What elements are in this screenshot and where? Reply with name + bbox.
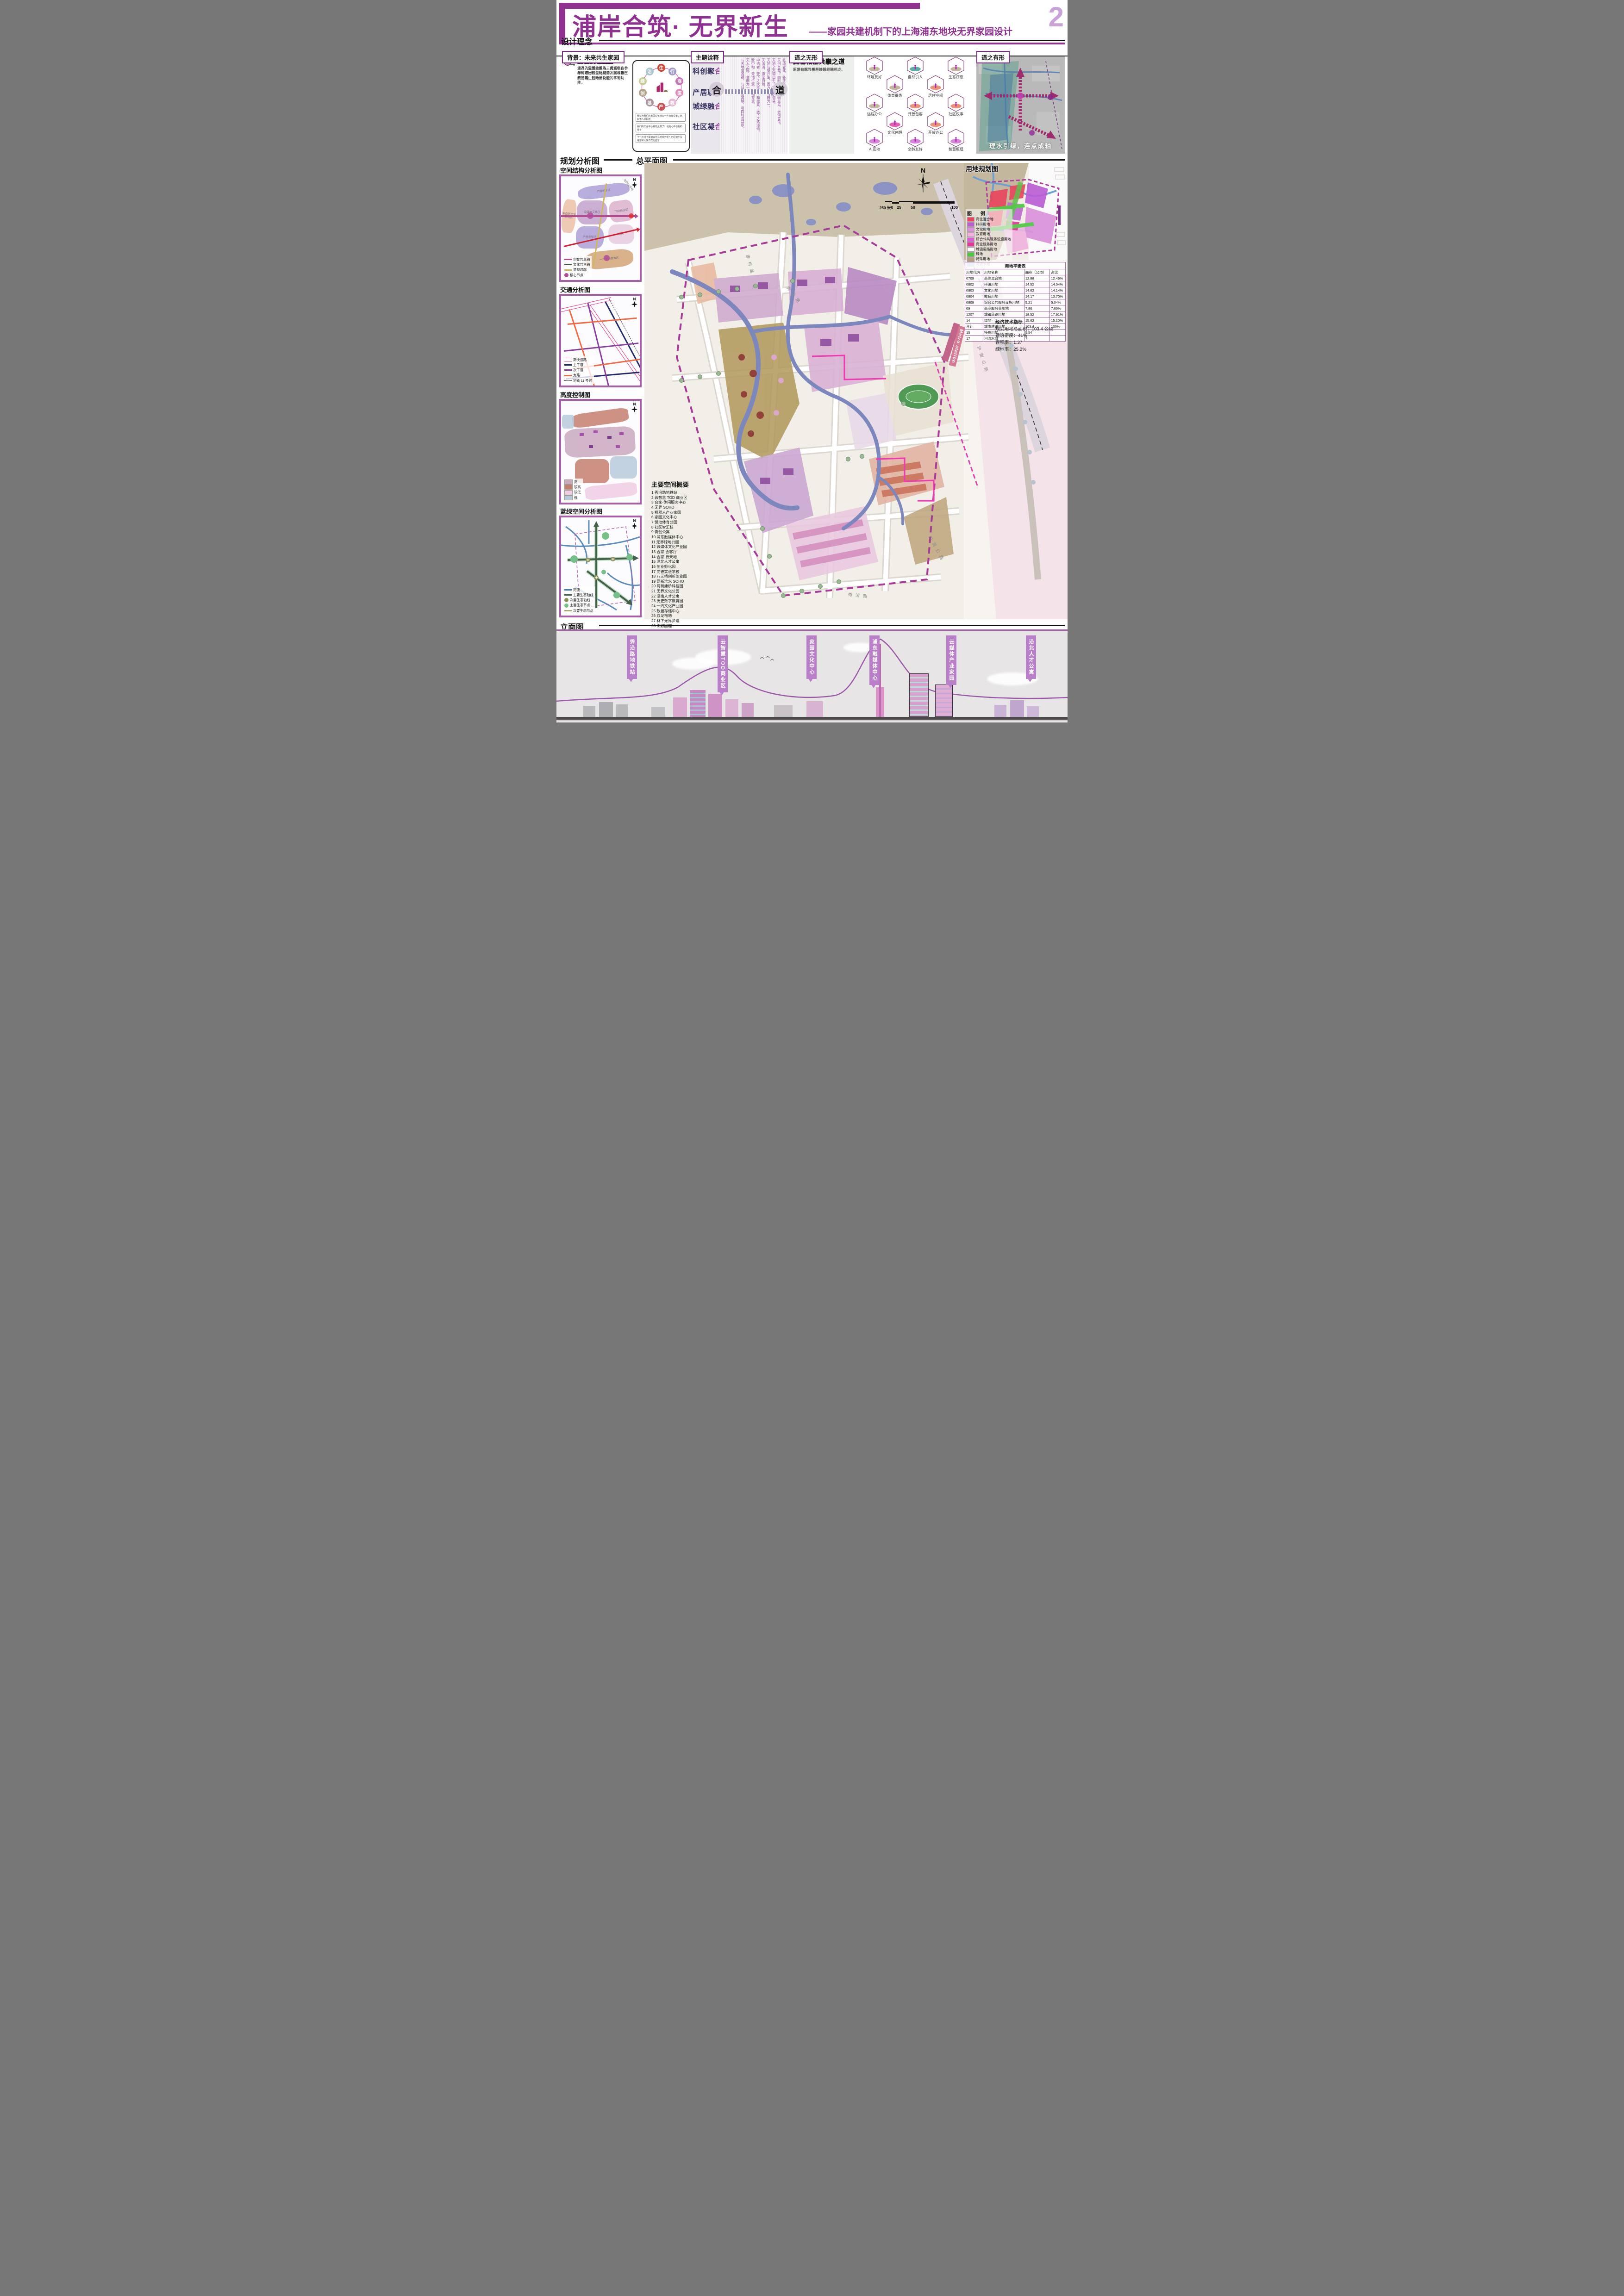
- elevation-label: 家园文化中心: [806, 635, 817, 679]
- function-dot: 产: [657, 103, 665, 111]
- height-zone-high: [564, 426, 636, 458]
- verse: 天何言哉？四时行焉，百物生焉，天何言哉。: [777, 58, 781, 152]
- space-summary-item: 11 无界绿地公园: [651, 540, 725, 545]
- function-dot: 教: [668, 99, 676, 106]
- table-row: 0803 文化用地 14.62 14.14%: [965, 287, 1066, 293]
- space-summary-item: 18 八元桥创新创业园: [651, 574, 725, 579]
- legend-swatch: [564, 269, 572, 271]
- compass-icon: N: [631, 403, 637, 415]
- function-dot: 治: [646, 68, 654, 75]
- poster-page: 浦岸合筑· 无界新生 ——家园共建机制下的上海浦东地块无界家园设计 2 设计理念…: [556, 0, 1068, 722]
- hexagon-icon: [907, 56, 924, 75]
- space-summary: 主要空间概要 1 秀沿路地铁站2 云智慧 TOD 商业区3 合家·休闲服务中心4…: [651, 479, 725, 628]
- core-node: [604, 255, 610, 261]
- legend-swatch: [564, 375, 572, 376]
- spatial-structure-map: 产居创智区 云媒体文化区 TOD商业区 校区 产居创智区: [559, 174, 642, 282]
- elevation-building: [994, 705, 1006, 717]
- hexagon-icon: [866, 129, 883, 147]
- function-dot: 绿: [639, 77, 647, 85]
- legend-row: 高快速路: [564, 357, 592, 362]
- elevation-label: 秀沿路地铁站: [627, 635, 637, 679]
- elevation-building: [725, 699, 738, 717]
- theme-keyword: 科创聚合: [693, 66, 718, 76]
- hexagon-icon: [887, 112, 903, 131]
- legend-row: 河流: [564, 587, 593, 592]
- table-row: 09 商业服务业用地 7.86 7.60%: [965, 305, 1066, 311]
- hex-label: 智慧枢纽: [937, 147, 974, 152]
- compass-icon: N: [631, 298, 637, 310]
- legend-swatch: [564, 589, 572, 591]
- legend-chip: [967, 247, 974, 252]
- hexagon-icon: [887, 75, 903, 93]
- legend-row: 主要生态节点: [564, 603, 593, 608]
- building-icon: [655, 81, 668, 97]
- page-title: 浦岸合筑· 无界新生: [572, 7, 789, 42]
- elevation-building: [774, 705, 793, 717]
- landuse-legend-title: 图 例: [967, 210, 1011, 217]
- space-summary-item: 2 云智慧 TOD 商业区: [651, 496, 725, 501]
- legend-row: 主要生态轴线: [564, 592, 593, 597]
- table-row: 0809 综合公共服务设施用地 5.21 5.04%: [965, 299, 1066, 305]
- hexagon-icon: [948, 56, 964, 75]
- legend-swatch: [564, 264, 572, 265]
- elevation-building: [583, 706, 595, 717]
- hexagon-icon: [927, 75, 944, 93]
- legend-chip: [967, 232, 974, 237]
- verse: 天地与我并生，而万物与我为一。: [766, 58, 770, 152]
- blue-green-map: N 河流 主要生态轴线 次要生态轴线: [559, 516, 642, 617]
- legend-swatch: [564, 358, 572, 361]
- space-summary-item: 16 创业孵化园: [651, 565, 725, 570]
- space-summary-item: 8 社区智汇核: [651, 525, 725, 530]
- table-row: 1207 城镇道路用地 18.52 17.91%: [965, 311, 1066, 317]
- legend-swatch: [564, 369, 572, 371]
- elevation-building: [690, 690, 706, 717]
- chat-bubbles: 我认为我们的家园应该增加一些智能设备，比如无人机配送 我们的文化中心做的太赞了！…: [636, 113, 686, 145]
- hexagon-icon: [948, 93, 964, 112]
- table-title: 用地平衡表: [965, 262, 1066, 269]
- economic-indicators: 经济技术指标 规划用地总面积：103.4 公顷建筑密度：41%容积率：1.37绿…: [995, 319, 1066, 353]
- space-summary-item: 5 机器人产业家园: [651, 510, 725, 516]
- elevation-strip: 秀沿路地铁站云智慧TOD商业区家园文化中心浦东融媒体中心云媒体产业家园沿北人才公…: [556, 629, 1068, 722]
- table-header-row: 用地代码 用地名称 面积（公顷） 占比: [965, 269, 1066, 275]
- elevation-label: 云智慧TOD商业区: [718, 635, 728, 692]
- chat-bubble: 我们的文化中心做的太赞了！是我心中该有的样子: [636, 124, 686, 132]
- scale-tick: 250 米: [879, 205, 891, 211]
- legend-swatch: [564, 598, 568, 602]
- function-ring: 住 行 商 医 教 产 基 创 绿 治: [638, 64, 684, 110]
- elevation-building: [1010, 700, 1024, 717]
- subground-line: [556, 720, 1068, 722]
- elevation-building: [673, 697, 687, 717]
- space-summary-item: 6 家园文化中心: [651, 515, 725, 520]
- dao-intangible-panel: 人地和谐共生之道 人与自然界相互渗透。 产居一体共享之道 生活社区与生产社区相融…: [789, 56, 854, 154]
- legend-row: 地铁 11 号线: [564, 378, 592, 383]
- legend-swatch: [564, 610, 572, 611]
- verse: 天地之大德曰生，生生之谓易。: [771, 58, 775, 152]
- north-arrow: N: [915, 167, 931, 195]
- spatial-zone: TOD商业区: [608, 199, 635, 224]
- landuse-title: 用地规划图: [966, 164, 998, 174]
- legend-swatch: [564, 364, 572, 366]
- legend-row: 绿地: [967, 252, 1011, 257]
- hexagon-icon: [866, 93, 883, 112]
- concept-panel: AI 技术统盘 通过人工智能系统，对城市各个系统进行智慧化整合，实现城市的感知、…: [562, 56, 689, 154]
- scale-tick: 0: [891, 205, 893, 210]
- space-summary-item: 20 网新康桥科技园: [651, 584, 725, 589]
- legend-row: 较低: [564, 490, 581, 495]
- elevation-building: [616, 704, 628, 717]
- traffic-map-title: 交通分析图: [560, 285, 590, 294]
- elevation-label: 云媒体产业家园: [946, 635, 956, 685]
- tag-theme: 主题诠释: [691, 51, 724, 63]
- height-control-map: N 高 较高 较低: [559, 399, 642, 504]
- scale-bar: 02550100250 米: [885, 200, 955, 210]
- function-dot: 医: [675, 89, 683, 97]
- compass-icon: N: [631, 519, 637, 531]
- legend-swatch: [564, 380, 572, 381]
- legend-swatch: [564, 259, 572, 260]
- tag-dao-intangible: 道之无形: [789, 51, 823, 63]
- legend-swatch: [564, 604, 568, 608]
- theme-panel: 科创聚合 产居联合 城绿融合 社区凝合 乾道变化，各正其道。天何言哉？四时行焉，…: [691, 56, 788, 154]
- legend-row: 较高: [564, 485, 581, 490]
- height-zone-higher: [572, 407, 630, 429]
- landuse-legend: 图 例 商住混合地 科研用地 文化用地: [966, 209, 1012, 268]
- analysis-rule: [604, 159, 632, 161]
- space-summary-item: 13 合家·会客厅: [651, 550, 725, 555]
- legend-chip: [967, 227, 974, 232]
- aerial-caption: 理水引绿，连点成轴: [976, 141, 1065, 150]
- legend-row: 教育用地: [967, 232, 1011, 237]
- elevation-building: [651, 707, 665, 717]
- space-summary-item: 28 田野园趣: [651, 624, 725, 629]
- space-summary-item: 24 一汽文化产业园: [651, 604, 725, 609]
- legend-chip: [967, 257, 974, 262]
- legend-chip: [967, 252, 974, 257]
- secondary-line: [564, 342, 638, 351]
- legend-row: 低: [564, 495, 581, 500]
- function-dot: 住: [657, 64, 665, 72]
- legend-row: 创智共享轴: [564, 257, 590, 262]
- height-zone-low: [610, 456, 637, 479]
- hex-grid: 环境友好 自然引入 生态疗愈: [855, 56, 974, 154]
- legend-chip: [967, 237, 974, 242]
- verse: 致中和，天地位焉，万物育焉。: [750, 58, 755, 152]
- legend-row: 商业服务用地: [967, 242, 1011, 247]
- theme-keyword: 社区凝合: [693, 121, 718, 131]
- hexagon-icon: [927, 112, 944, 131]
- spatial-legend: 创智共享轴 文化共生轴 景观通廊 核心节点: [562, 256, 592, 279]
- section-title-analysis: 规划分析图: [560, 155, 600, 166]
- function-dot: 基: [646, 99, 654, 106]
- theme-keywords: 科创聚合 产居联合 城绿融合 社区凝合: [691, 56, 719, 154]
- elevation-building: [742, 703, 754, 717]
- hexagon-icon: [866, 56, 883, 75]
- indicator-line: 绿地率：25.2%: [995, 347, 1066, 354]
- elevation-label: 沿北人才公寓: [1026, 635, 1036, 679]
- legend-swatch: [564, 490, 573, 495]
- hexagon-icon: [907, 129, 924, 147]
- legend-row: 支路: [564, 373, 592, 378]
- legend-row: 主干道: [564, 362, 592, 367]
- elevation-building: [708, 694, 722, 717]
- dao-item-desc: 历史文脉与新兴科技相辅相成。: [793, 67, 851, 72]
- table-row: 0804 教育用地 14.17 13.70%: [965, 293, 1066, 299]
- chat-bubble: 我认为我们的家园应该增加一些智能设备，比如无人机配送: [636, 113, 686, 122]
- elevation-building: [935, 684, 953, 717]
- legend-row: 文化共生轴: [564, 262, 590, 267]
- tablet-illustration: 住 行 商 医 教 产 基 创 绿 治: [632, 60, 690, 152]
- verse: 天法道，道法自然。: [761, 58, 765, 152]
- verse: 与天地合其德，与日月合其明，与四时合其序。: [740, 58, 744, 152]
- scale-tick: 50: [911, 205, 915, 210]
- legend-swatch: [564, 495, 573, 500]
- he-dao-arrow: [725, 89, 771, 94]
- aerial-map: [976, 56, 1065, 154]
- classical-verses: 乾道变化，各正其道。天何言哉？四时行焉，百物生焉，天何言哉。天地之大德曰生，生生…: [719, 56, 788, 154]
- traffic-map: N 高快速路 主干道 次干道: [559, 294, 642, 387]
- legend-row: 核心节点: [564, 273, 590, 278]
- elevation-building: [599, 702, 613, 717]
- height-zone-lower: [585, 481, 638, 501]
- legend-swatch: [564, 479, 573, 485]
- space-summary-item: 17 尚德实验学校: [651, 570, 725, 575]
- traffic-legend: 高快速路 主干道 次干道 支路: [562, 356, 594, 384]
- elevation-building: [1027, 706, 1039, 717]
- indicators-title: 经济技术指标: [995, 319, 1066, 326]
- bluegreen-legend: 河流 主要生态轴线 次要生态轴线 主要生态节点: [562, 586, 595, 614]
- elevation-label: 浦东融媒体中心: [869, 635, 880, 685]
- space-summary-item: 3 合家·休闲服务中心: [651, 500, 725, 505]
- space-summary-item: 22 沿南人才公寓: [651, 594, 725, 599]
- indicator-line: 规划用地总面积：103.4 公顷: [995, 326, 1066, 333]
- sheet-number: 2: [1049, 1, 1064, 33]
- indicator-lines: 规划用地总面积：103.4 公顷建筑密度：41%容积率：1.37绿地率：25.2…: [995, 326, 1066, 354]
- legend-row: 次要生态轴线: [564, 597, 593, 603]
- hex-cell: 全龄友好: [897, 129, 934, 152]
- legend-row: 次要生态节点: [564, 608, 593, 613]
- space-summary-item: 21 无界文化公园: [651, 589, 725, 594]
- height-map-title: 高度控制图: [560, 390, 590, 399]
- height-zone-low: [562, 415, 574, 429]
- legend-row: 文化用地: [967, 227, 1011, 232]
- space-summary-item: 9 青创公寓: [651, 530, 725, 535]
- tag-background: 背景：未来共生家园: [562, 51, 625, 63]
- space-summary-item: 27 林下无界步道: [651, 619, 725, 624]
- hexagon-icon: [948, 129, 964, 147]
- height-legend: 高 较高 较低 低: [562, 479, 583, 501]
- masterplan-rule: [673, 159, 1065, 161]
- scale-tick: 25: [897, 205, 901, 210]
- space-summary-item: 26 双龙福地: [651, 614, 725, 619]
- dao-circle: 道: [773, 82, 787, 97]
- verse: 乾道变化，各正其道。: [782, 58, 786, 152]
- chat-bubble: 下一次线下联谊会什么时候开呢？已经迫不及待想和大家再次见面了: [636, 134, 686, 143]
- he-circle: 合: [709, 82, 724, 97]
- space-summary-item: 12 云媒体文化产业园: [651, 545, 725, 550]
- legend-row: 次干道: [564, 367, 592, 373]
- concept-item-desc: 以人的需求为核心，促进公众参与的家园建设机制，发展城市生长的内生性力量。: [577, 66, 631, 81]
- scale-tick: 100: [951, 205, 958, 210]
- space-summary-item: 4 无界 SOHO: [651, 505, 725, 510]
- legend-row: 景观通廊: [564, 267, 590, 272]
- space-summary-item: 15 沿北人才公寓: [651, 560, 725, 565]
- section-title-concept: 设计理念: [561, 35, 593, 47]
- function-dot: 行: [668, 68, 676, 75]
- space-summary-item: 25 数据存储中心: [651, 609, 725, 614]
- legend-row: 商住混合地: [967, 217, 1011, 222]
- page-subtitle: ——家园共建机制下的上海浦东地块无界家园设计: [809, 24, 1012, 37]
- legend-swatch: [564, 273, 568, 277]
- function-dot: 创: [639, 89, 647, 97]
- elevation-building: [909, 673, 929, 717]
- space-summary-item: 10 浦东融媒体中心: [651, 535, 725, 540]
- space-summary-item: 14 合家·云天地: [651, 555, 725, 560]
- concept-rule: [599, 40, 1065, 41]
- legend-row: 综合公共服务设施用地: [967, 237, 1011, 242]
- hex-label: 全龄友好: [897, 147, 934, 152]
- landuse-legend-rows: 商住混合地 科研用地 文化用地 教育用地: [967, 217, 1011, 267]
- legend-swatch: [564, 485, 573, 490]
- hexagon-icon: [907, 93, 924, 112]
- space-summary-list: 1 秀沿路地铁站2 云智慧 TOD 商业区3 合家·休闲服务中心4 无界 SOH…: [651, 491, 725, 628]
- elevation-building: [806, 701, 823, 717]
- table-row: 0802 科研用地 14.52 14.04%: [965, 281, 1066, 287]
- hex-label: AI互动: [856, 147, 893, 152]
- legend-swatch: [564, 594, 572, 596]
- space-summary-title: 主要空间概要: [651, 479, 725, 489]
- hex-cell: AI互动: [856, 129, 893, 152]
- verse: 天人之际，合而为一。: [745, 58, 750, 152]
- expressway-line: [559, 297, 612, 313]
- innovation-axis: [561, 215, 635, 217]
- function-dot: 商: [675, 77, 683, 85]
- legend-chip: [967, 242, 974, 247]
- indicator-line: 容积率：1.37: [995, 340, 1066, 347]
- bluegreen-map-title: 蓝绿空间分析图: [560, 507, 602, 516]
- space-summary-item: 19 网新滨水 SOHO: [651, 579, 725, 585]
- legend-chip: [967, 217, 974, 222]
- dao-tangible-panel: 理水引绿，连点成轴: [976, 56, 1065, 154]
- space-summary-item: 1 秀沿路地铁站: [651, 491, 725, 496]
- legend-chip: [967, 222, 974, 227]
- hex-cell: 智慧枢纽: [937, 129, 974, 152]
- spatial-map-title: 空间结构分析图: [560, 166, 602, 174]
- table-row: 0709 商住混合地 12.88 12.46%: [965, 275, 1066, 281]
- header-underline: [559, 43, 1065, 44]
- compass-rose-icon: [915, 174, 931, 193]
- core-node: [587, 212, 593, 219]
- indicator-line: 建筑密度：41%: [995, 333, 1066, 340]
- legend-row: 科研用地: [967, 222, 1011, 227]
- tag-dao-tangible: 道之有形: [976, 51, 1010, 63]
- core-node: [629, 213, 634, 218]
- space-summary-item: 23 历史数字教育园: [651, 599, 725, 604]
- legend-row: 高: [564, 479, 581, 485]
- space-summary-item: 7 悦动体育公园: [651, 520, 725, 525]
- verse: 中也者，天下之大本也；和也者，天下之达道也。: [756, 58, 760, 152]
- theme-keyword: 城绿融合: [693, 101, 718, 111]
- legend-row: 特殊用地: [967, 257, 1011, 262]
- legend-row: 城镇道路用地: [967, 247, 1011, 252]
- compass-icon: N: [631, 178, 637, 190]
